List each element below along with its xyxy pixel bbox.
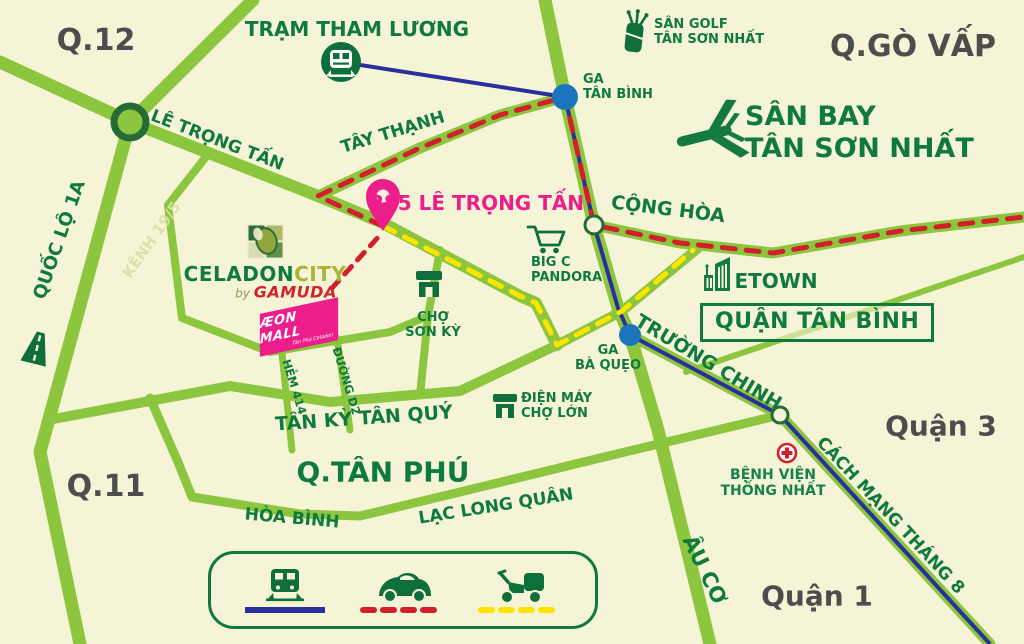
office-building-icon: [704, 257, 730, 291]
benh-vien-line1: BỆNH VIỆN: [720, 468, 825, 484]
airplane-icon: [670, 97, 750, 172]
landmark-label-big-c: BIG C PANDORA: [531, 256, 602, 285]
train-icon: [263, 567, 307, 603]
benh-vien-line2: THỐNG NHẤT: [720, 484, 825, 500]
golf-bag-icon: [623, 8, 649, 53]
landmark-label-dien-may: ĐIỆN MÁY CHỢ LỚN: [521, 392, 592, 421]
cho-son-ky-line2: SƠN KỲ: [405, 326, 461, 341]
highway-icon: [21, 329, 54, 366]
ga-tan-binh-marker: [552, 84, 578, 110]
electronics-store-icon: [493, 394, 517, 418]
landmark-label-etown: ETOWN: [734, 270, 817, 292]
shopping-cart-icon: [528, 227, 564, 253]
ga-ba-queo-line1: GA: [575, 344, 641, 359]
roundabout-node: [114, 106, 146, 138]
by-text: by: [235, 287, 250, 301]
train-line-sample: [241, 606, 329, 614]
san-golf-line2: TÂN SƠN NHẤT: [654, 33, 764, 48]
legend-item-scooter: [477, 567, 565, 614]
san-bay-line1: SÂN BAY: [745, 101, 974, 133]
junction-node-cong-hoa: [585, 216, 603, 234]
district-label-go-vap: Q.GÒ VẤP: [830, 30, 996, 64]
dien-may-line1: ĐIỆN MÁY: [521, 392, 592, 407]
scooter-line-sample: [477, 606, 565, 614]
station-label-tram-tham-luong: TRẠM THAM LƯƠNG: [245, 18, 469, 40]
landmark-label-cho-son-ky: CHỢ SƠN KỲ: [405, 311, 461, 340]
landmark-label-san-golf: SÂN GOLF TÂN SƠN NHẤT: [654, 18, 764, 47]
big-c-line1: BIG C: [531, 256, 602, 271]
celadon-city-logo: [247, 224, 284, 259]
legend-item-car: [359, 567, 447, 614]
road-west-spur: [0, 62, 130, 122]
dien-may-line2: CHỢ LỚN: [521, 407, 592, 422]
project-byline: by GAMUDA: [235, 283, 337, 302]
landmark-label-benh-vien: BỆNH VIỆN THỐNG NHẤT: [720, 468, 825, 499]
landmark-label-san-bay: SÂN BAY TÂN SƠN NHẤT: [745, 101, 974, 166]
car-icon: [375, 567, 431, 603]
hospital-cross-icon: [778, 444, 796, 462]
scooter-icon: [493, 567, 549, 603]
developer-name: GAMUDA: [254, 283, 337, 302]
legend-box: [208, 551, 598, 629]
ga-tan-binh-line2: TÂN BÌNH: [583, 88, 653, 103]
project-address-label: 285 LÊ TRỌNG TẤN: [370, 192, 584, 214]
san-bay-line2: TÂN SƠN NHẤT: [745, 133, 974, 165]
station-label-ga-tan-binh: GA TÂN BÌNH: [583, 73, 653, 102]
district-label-q11: Q.11: [67, 470, 146, 504]
san-golf-line1: SÂN GOLF: [654, 18, 764, 33]
train-station-icon: [321, 42, 361, 82]
market-icon: [416, 271, 442, 297]
ga-tan-binh-line1: GA: [583, 73, 653, 88]
ga-ba-queo-line2: BÀ QUẸO: [575, 359, 641, 374]
district-label-q12: Q.12: [57, 24, 136, 58]
cho-son-ky-line1: CHỢ: [405, 311, 461, 326]
legend-item-train: [241, 567, 329, 614]
big-c-line2: PANDORA: [531, 271, 602, 286]
district-label-tan-binh: QUẬN TÂN BÌNH: [700, 303, 934, 342]
district-label-quan1: Quận 1: [761, 580, 873, 611]
district-label-quan3: Quận 3: [885, 410, 997, 441]
car-line-sample: [359, 606, 447, 614]
station-label-ga-ba-queo: GA BÀ QUẸO: [575, 344, 641, 373]
celadon-city-location-map: { "colors": { "background": "#f6f4d6", "…: [0, 0, 1024, 644]
district-label-tan-phu: Q.TÂN PHÚ: [297, 456, 470, 487]
